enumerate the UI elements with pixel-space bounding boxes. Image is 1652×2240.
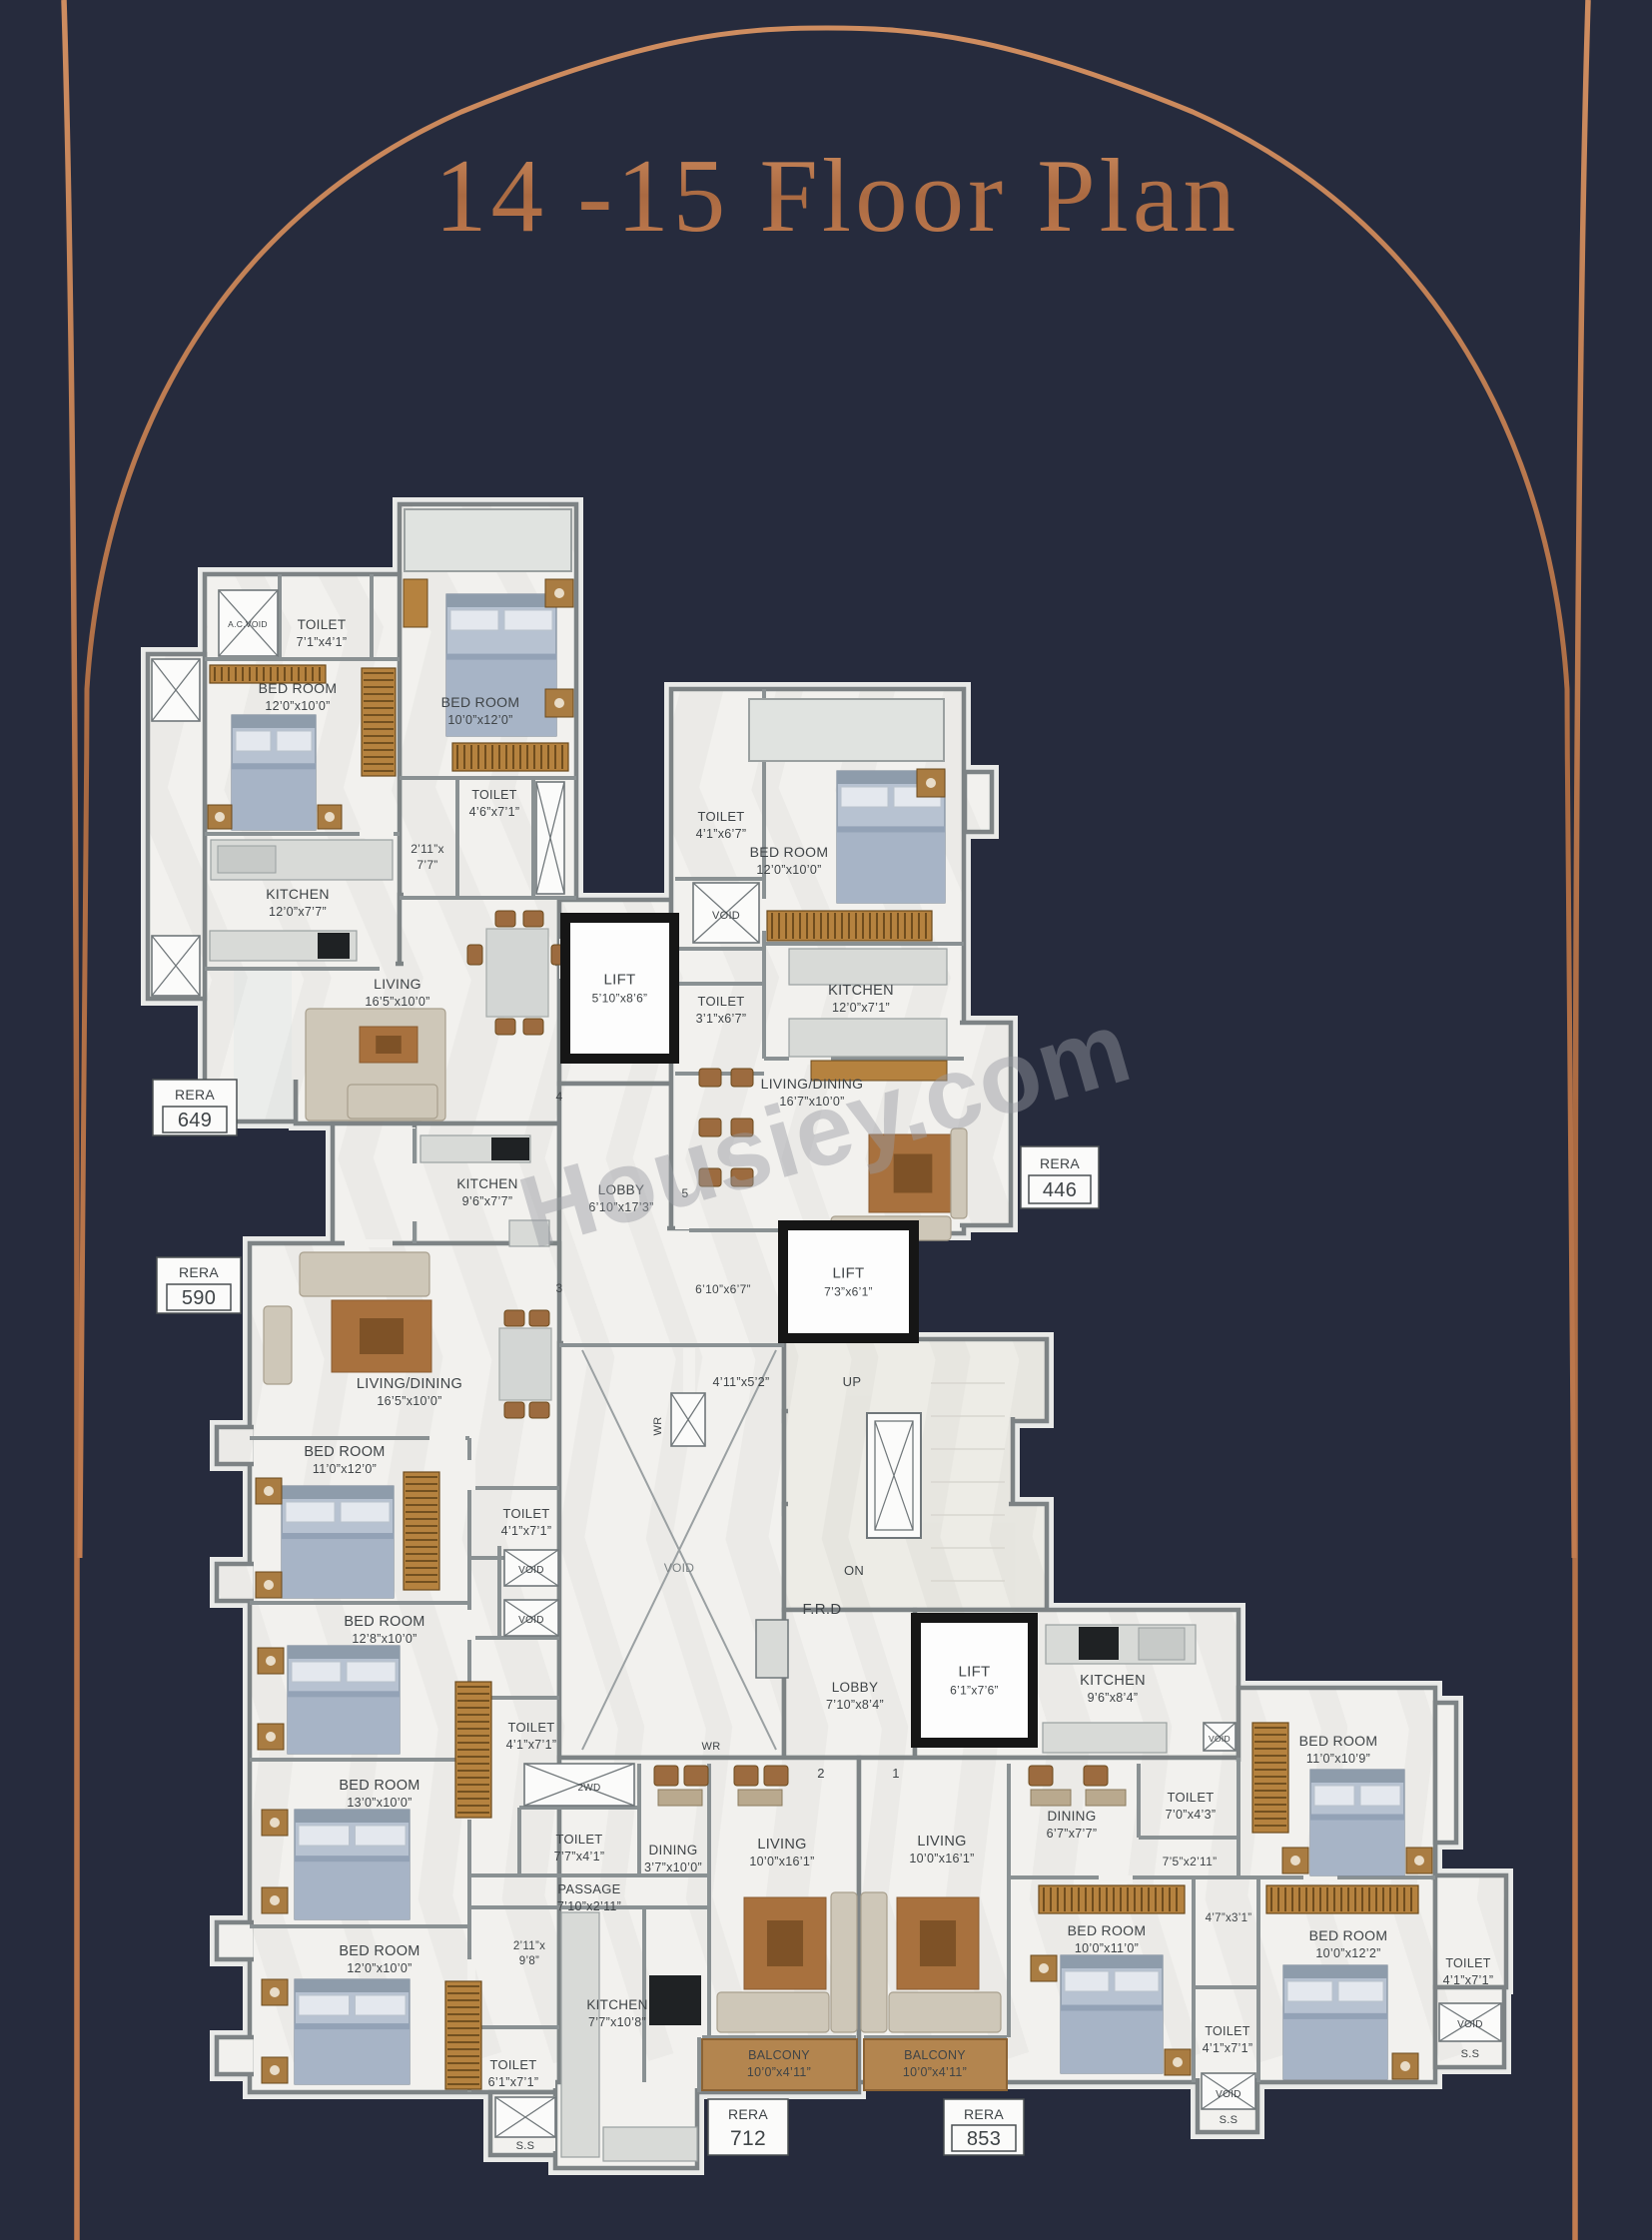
svg-text:KITCHEN: KITCHEN — [456, 1176, 517, 1191]
svg-text:7’7”x10’8”: 7’7”x10’8” — [588, 2015, 646, 2029]
svg-text:TOILET: TOILET — [502, 1506, 549, 1521]
svg-text:9’6”x7’7”: 9’6”x7’7” — [462, 1194, 513, 1208]
svg-text:12’0”x10’0”: 12’0”x10’0” — [347, 1961, 412, 1975]
svg-text:4’6”x7’1”: 4’6”x7’1” — [469, 805, 520, 819]
svg-text:6’1”x7’1”: 6’1”x7’1” — [488, 2075, 539, 2089]
svg-text:4’1”x7’1”: 4’1”x7’1” — [1443, 1973, 1494, 1987]
svg-text:VOID: VOID — [712, 910, 740, 922]
svg-text:TOILET: TOILET — [298, 617, 347, 632]
svg-text:DINING: DINING — [648, 1843, 697, 1858]
svg-text:11’0”x10’9”: 11’0”x10’9” — [1306, 1752, 1370, 1766]
svg-text:S.S: S.S — [516, 2140, 535, 2152]
svg-text:LIFT: LIFT — [958, 1664, 990, 1681]
svg-text:11’0”x12’0”: 11’0”x12’0” — [313, 1462, 377, 1476]
svg-text:7’1”x4’1”: 7’1”x4’1” — [297, 635, 348, 649]
svg-text:LIFT: LIFT — [832, 1265, 864, 1282]
svg-text:9’8”: 9’8” — [519, 1955, 539, 1967]
svg-text:14 -15 Floor Plan: 14 -15 Floor Plan — [434, 137, 1239, 254]
svg-text:TOILET: TOILET — [1205, 2024, 1249, 2038]
svg-text:A.C.VOID: A.C.VOID — [228, 619, 268, 629]
svg-text:12’0”x10’0”: 12’0”x10’0” — [265, 699, 330, 713]
svg-text:4’1”x7’1”: 4’1”x7’1” — [1203, 2041, 1253, 2055]
svg-text:KITCHEN: KITCHEN — [586, 1997, 647, 2012]
svg-text:S.S: S.S — [1220, 2114, 1239, 2126]
svg-text:BED ROOM: BED ROOM — [304, 1444, 385, 1460]
svg-text:TOILET: TOILET — [697, 809, 744, 824]
svg-text:F.R.D: F.R.D — [803, 1601, 842, 1618]
svg-text:BED ROOM: BED ROOM — [344, 1614, 424, 1630]
svg-text:7’3”x6’1”: 7’3”x6’1” — [824, 1285, 873, 1299]
svg-text:12’8”x10’0”: 12’8”x10’0” — [352, 1632, 416, 1646]
svg-text:TOILET: TOILET — [489, 2057, 536, 2072]
svg-text:TOILET: TOILET — [1445, 1956, 1490, 1970]
svg-text:VOID: VOID — [1209, 1734, 1231, 1744]
svg-text:DINING: DINING — [1047, 1809, 1096, 1824]
svg-text:3: 3 — [556, 1281, 563, 1295]
svg-text:4’7”x3’1”: 4’7”x3’1” — [1206, 1912, 1252, 1924]
svg-text:7’10”x8’4”: 7’10”x8’4” — [826, 1698, 884, 1712]
svg-text:13’0”x10’0”: 13’0”x10’0” — [347, 1796, 412, 1810]
svg-text:12’0”x7’1”: 12’0”x7’1” — [832, 1001, 890, 1015]
svg-text:UP: UP — [843, 1374, 862, 1389]
svg-text:712: 712 — [730, 2127, 766, 2150]
svg-text:4’1”x7’1”: 4’1”x7’1” — [506, 1738, 557, 1752]
svg-text:VOID: VOID — [518, 1615, 544, 1626]
svg-text:LIFT: LIFT — [603, 972, 635, 989]
svg-text:2’11”x: 2’11”x — [411, 842, 444, 856]
svg-text:VOID: VOID — [518, 1565, 544, 1576]
svg-text:S.S: S.S — [1461, 2048, 1480, 2060]
svg-text:7’7”x4’1”: 7’7”x4’1” — [554, 1850, 605, 1864]
svg-text:LIVING/DINING: LIVING/DINING — [357, 1376, 462, 1392]
svg-text:590: 590 — [182, 1287, 216, 1309]
svg-text:853: 853 — [967, 2128, 1001, 2150]
svg-text:649: 649 — [178, 1110, 212, 1131]
svg-text:TOILET: TOILET — [471, 788, 516, 802]
svg-text:VOID: VOID — [1457, 2019, 1483, 2030]
svg-text:KITCHEN: KITCHEN — [828, 983, 894, 999]
svg-text:BALCONY: BALCONY — [748, 2048, 810, 2062]
svg-text:BED ROOM: BED ROOM — [441, 694, 520, 710]
svg-text:ON: ON — [844, 1563, 864, 1578]
svg-text:4’1”x7’1”: 4’1”x7’1” — [501, 1524, 552, 1538]
svg-text:TOILET: TOILET — [1167, 1790, 1214, 1805]
svg-text:BALCONY: BALCONY — [904, 2048, 966, 2062]
svg-text:10’0”x16’1”: 10’0”x16’1” — [909, 1852, 974, 1866]
svg-text:7’0”x4’3”: 7’0”x4’3” — [1166, 1808, 1217, 1822]
svg-text:9’6”x8’4”: 9’6”x8’4” — [1088, 1691, 1139, 1705]
svg-text:10’0”x12’2”: 10’0”x12’2” — [1315, 1946, 1380, 1960]
svg-text:RERA: RERA — [179, 1264, 219, 1280]
svg-text:VOID: VOID — [664, 1561, 695, 1575]
svg-text:TOILET: TOILET — [507, 1720, 554, 1735]
svg-text:4’1”x6’7”: 4’1”x6’7” — [696, 827, 747, 841]
svg-text:BED ROOM: BED ROOM — [1299, 1733, 1378, 1749]
svg-text:16’5”x10’0”: 16’5”x10’0” — [365, 995, 429, 1009]
svg-text:2: 2 — [817, 1766, 825, 1781]
svg-text:3’7”x10’0”: 3’7”x10’0” — [644, 1861, 702, 1874]
svg-text:KITCHEN: KITCHEN — [266, 886, 330, 902]
svg-text:PASSAGE: PASSAGE — [557, 1881, 620, 1896]
svg-text:RERA: RERA — [728, 2106, 768, 2122]
svg-text:BED ROOM: BED ROOM — [1309, 1927, 1388, 1943]
svg-text:6’10”x6’7”: 6’10”x6’7” — [695, 1282, 751, 1296]
svg-text:TOILET: TOILET — [555, 1832, 602, 1847]
svg-text:RERA: RERA — [964, 2106, 1004, 2122]
svg-text:12’0”x7’7”: 12’0”x7’7” — [269, 905, 327, 919]
svg-text:12’0”x10’0”: 12’0”x10’0” — [756, 863, 821, 877]
svg-text:6’1”x7’6”: 6’1”x7’6” — [950, 1684, 999, 1698]
svg-text:7’5”x2’11”: 7’5”x2’11” — [1163, 1855, 1218, 1868]
svg-text:2WD: 2WD — [577, 1783, 600, 1794]
svg-text:10’0”x11’0”: 10’0”x11’0” — [1075, 1941, 1139, 1955]
svg-text:6’7”x7’7”: 6’7”x7’7” — [1047, 1827, 1098, 1841]
svg-text:BED ROOM: BED ROOM — [750, 844, 829, 860]
svg-text:VOID: VOID — [1216, 2089, 1241, 2100]
svg-text:10’0”x12’0”: 10’0”x12’0” — [447, 713, 512, 727]
svg-text:RERA: RERA — [1040, 1155, 1080, 1171]
svg-text:4: 4 — [556, 1090, 563, 1104]
svg-text:BED ROOM: BED ROOM — [339, 1943, 419, 1959]
svg-text:LIVING: LIVING — [757, 1837, 806, 1853]
svg-text:RERA: RERA — [175, 1087, 215, 1103]
svg-text:WR: WR — [652, 1417, 664, 1436]
svg-text:7’7”: 7’7” — [416, 858, 437, 872]
svg-text:10’0”x16’1”: 10’0”x16’1” — [749, 1855, 814, 1868]
svg-text:16’5”x10’0”: 16’5”x10’0” — [377, 1394, 441, 1408]
svg-text:446: 446 — [1043, 1179, 1077, 1201]
svg-text:4’11”x5’2”: 4’11”x5’2” — [713, 1375, 770, 1389]
svg-text:TOILET: TOILET — [697, 994, 744, 1009]
svg-text:10’0”x4’11”: 10’0”x4’11” — [903, 2065, 967, 2079]
svg-text:BED ROOM: BED ROOM — [339, 1778, 419, 1794]
svg-text:7’10”x2’11”: 7’10”x2’11” — [557, 1899, 621, 1913]
svg-text:LIVING: LIVING — [374, 976, 421, 992]
svg-text:LOBBY: LOBBY — [832, 1680, 879, 1695]
svg-text:10’0”x4’11”: 10’0”x4’11” — [747, 2065, 811, 2079]
svg-text:2’11”x: 2’11”x — [513, 1940, 545, 1952]
svg-text:3’1”x6’7”: 3’1”x6’7” — [696, 1012, 747, 1026]
svg-text:LIVING: LIVING — [917, 1834, 966, 1850]
svg-text:5’10”x8’6”: 5’10”x8’6” — [592, 992, 648, 1006]
svg-text:BED ROOM: BED ROOM — [1068, 1922, 1147, 1938]
svg-text:WR: WR — [702, 1741, 721, 1753]
svg-text:1: 1 — [892, 1766, 900, 1781]
svg-text:KITCHEN: KITCHEN — [1080, 1673, 1146, 1689]
